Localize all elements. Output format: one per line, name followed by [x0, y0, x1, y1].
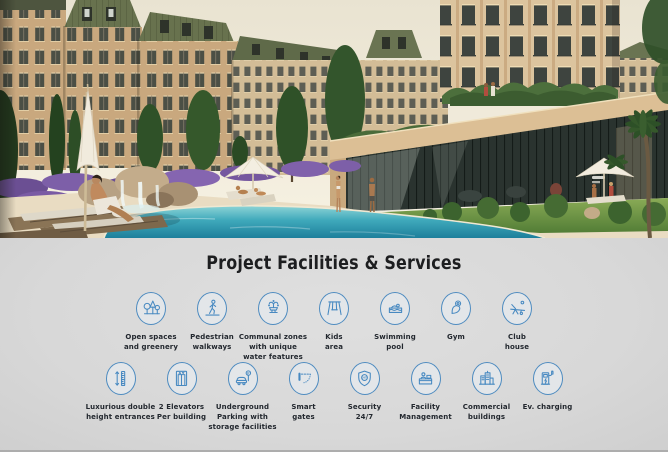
trees-icon: [141, 298, 162, 319]
parking-icon: P: [232, 368, 253, 389]
facilities-section: Project Facilities & Services Open space…: [0, 238, 668, 452]
lounger-icon: [507, 298, 528, 319]
facilities-row-1: Open spaces and greenery Pedestrian walk…: [0, 292, 668, 362]
facility-swimming-pool: Swimming pool: [365, 292, 426, 352]
project-photo-illustration: [0, 0, 668, 238]
buildings-icon: [476, 368, 497, 389]
swimmer-icon: [385, 298, 406, 319]
apartment-building-right: [440, 0, 620, 106]
swing-icon: [324, 298, 345, 319]
pedestrian-icon: [202, 298, 223, 319]
reception-icon: [415, 368, 436, 389]
facility-club-house: Club house: [487, 292, 548, 352]
facility-commercial-buildings: Commercial buildings: [456, 362, 517, 422]
facility-ev-charging: Ev. charging: [517, 362, 578, 412]
gym-icon: [446, 298, 467, 319]
section-title: Project Facilities & Services: [0, 250, 668, 276]
photo-vignette: [0, 0, 16, 238]
facility-label: Ev. charging: [506, 402, 590, 412]
project-flyer: Project Facilities & Services Open space…: [0, 0, 668, 452]
gate-icon: [293, 368, 314, 389]
project-photo: [0, 0, 668, 238]
shield-icon: 24/7: [354, 368, 375, 389]
facility-label: Club house: [475, 332, 559, 352]
fountain-icon: [263, 298, 284, 319]
security-badge-text: 24/7: [362, 376, 367, 379]
double-height-icon: [110, 368, 131, 389]
ev-charger-icon: [537, 368, 558, 389]
facilities-row-2: Luxurious double height entrances 2 Elev…: [0, 362, 668, 432]
elevator-icon: [171, 368, 192, 389]
